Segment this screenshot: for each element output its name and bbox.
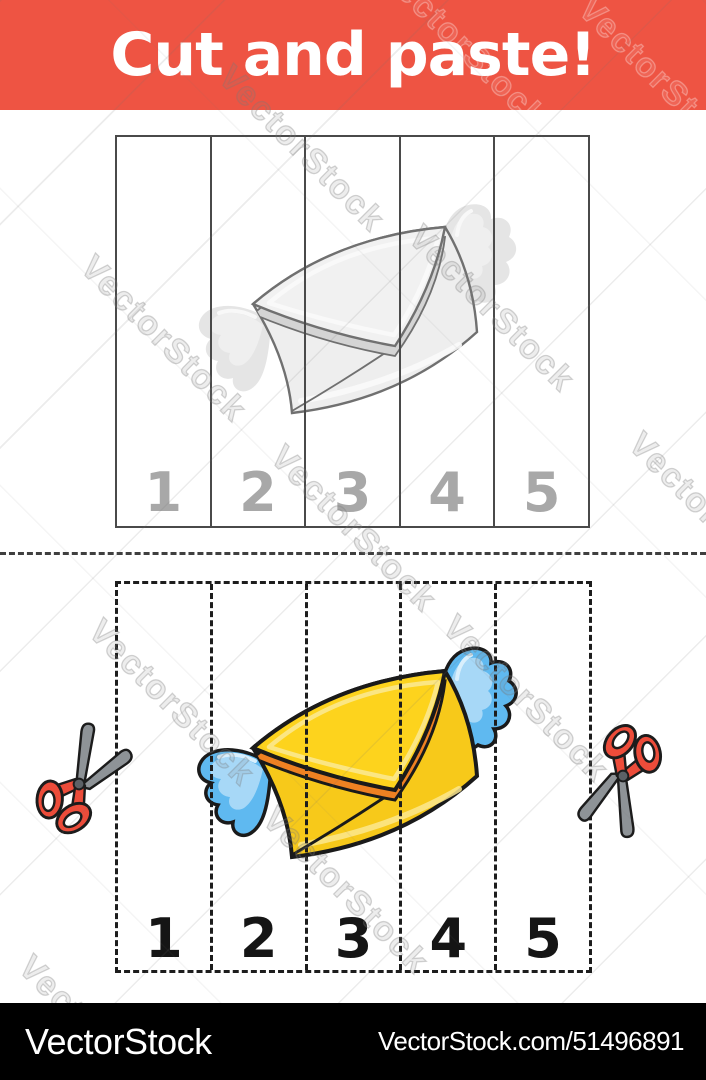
strip-number: 2 [213, 912, 305, 966]
puzzle-strip: 5 [494, 584, 589, 970]
footer-url: VectorStock.com/51496891 [378, 1026, 684, 1057]
strip-number: 5 [497, 912, 589, 966]
strip-number: 4 [401, 466, 494, 520]
puzzle-strip: 4 [399, 137, 494, 526]
strip-number: 5 [495, 466, 588, 520]
footer-logo: VectorStock [25, 1021, 212, 1063]
scissors-blade [577, 764, 622, 827]
footer-bar: VectorStock VectorStock.com/51496891 [0, 1003, 706, 1080]
strip-number: 1 [118, 912, 210, 966]
worksheet-page: Cut and paste! VectorStock VectorStock 1… [0, 0, 706, 1080]
watermark-text: VectorStock [620, 425, 706, 607]
strip-number: 1 [117, 466, 210, 520]
